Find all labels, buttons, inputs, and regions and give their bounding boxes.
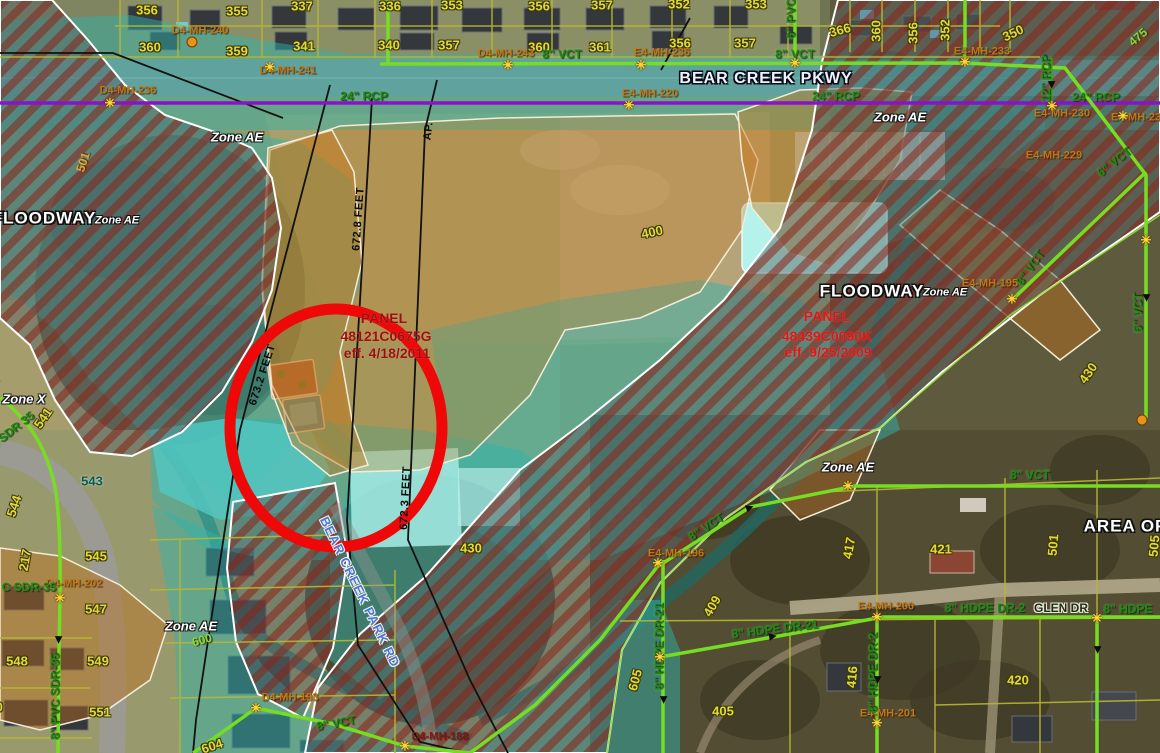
parcel-label: 505	[1147, 535, 1160, 558]
parcel-label: 501	[1046, 534, 1061, 557]
parcel-label: 549	[87, 655, 109, 668]
flow-arrow-icon: ▶	[872, 676, 882, 684]
contour-label: 600	[191, 632, 213, 649]
flow-arrow-icon: ▶	[1046, 81, 1056, 89]
flow-arrow-icon: ▶	[1092, 646, 1102, 654]
panel-effective-date: eff. 4/18/2011	[344, 346, 430, 360]
parcel-label: 356	[907, 22, 920, 44]
parcel-label: 357	[438, 39, 460, 52]
parcel-label: 340	[378, 39, 400, 52]
parcel-label: 352	[939, 19, 952, 41]
manhole-icon: ✳	[960, 56, 971, 69]
parcel-label: 353	[441, 0, 463, 12]
parcel-label: 416	[845, 666, 860, 689]
street-label: BEAR CREEK PARK RD	[318, 515, 402, 670]
pipe-label: 8" VCT	[1010, 469, 1050, 481]
manhole-icon: ✳	[1141, 234, 1152, 247]
parcel-label: 547	[85, 603, 107, 616]
pipe-label: 24" RCP	[340, 90, 388, 102]
manhole-icon: ✳	[790, 57, 801, 70]
panel-title: PANEL	[804, 309, 850, 323]
floodway-label: FLOODWAY	[0, 210, 96, 227]
pipe-label: 6" PVC	[785, 0, 797, 39]
parcel-label: 417	[841, 536, 858, 560]
pipe-label: 8" VCT	[315, 714, 356, 733]
panel-effective-date: eff. 9/25/2009	[784, 345, 871, 359]
parcel-label: 400	[640, 223, 664, 240]
area-of-label: AREA OF	[1084, 518, 1160, 535]
manhole-label: E4-MH-229	[1026, 151, 1082, 162]
manhole-label: D4-MH-188	[412, 732, 469, 743]
pipe-label: 8" VCT	[1014, 248, 1047, 287]
panel-number: 48121C0675G	[340, 329, 431, 343]
parcel-label: 352	[668, 0, 690, 11]
pipe-label: 24" RCP	[812, 90, 860, 102]
parcel-label: 605	[626, 668, 644, 692]
flow-arrow-icon: ▶	[658, 696, 668, 704]
pipe-label: 12" RCP	[1040, 55, 1052, 103]
parcel-label: 421	[930, 543, 952, 556]
parcel-label: 336	[379, 0, 401, 13]
manhole-label: D4-MH-193	[262, 693, 319, 704]
panel-title: PANEL	[361, 311, 407, 325]
flow-arrow-icon: ▶	[768, 632, 777, 643]
parcel-label: 543	[81, 475, 103, 488]
manhole-icon: ✳	[872, 611, 883, 624]
parcel-label: 357	[734, 37, 756, 50]
contour-label: 604	[200, 736, 225, 753]
contour-label: 475	[1126, 26, 1149, 48]
parcel-label: 350	[1000, 23, 1025, 44]
parcel-label: 356	[528, 0, 550, 13]
manhole-icon: ✳	[655, 651, 666, 664]
parcel-label: 217	[17, 548, 34, 572]
parcel-label: 360	[139, 41, 161, 54]
pipe-label: 6" VCT	[1095, 145, 1134, 179]
manhole-icon: ✳	[624, 99, 635, 112]
parcel-label: 430	[460, 542, 482, 555]
manhole-icon: ✳	[636, 59, 647, 72]
manhole-label: D4-MH-240	[172, 26, 229, 37]
contour-label: 501	[74, 151, 92, 174]
manhole-label: E4-MH-195	[962, 279, 1018, 290]
zone-x-label: Zone X	[2, 393, 45, 406]
manhole-icon: ✳	[503, 59, 514, 72]
pipe-label: 8" VCT	[542, 48, 582, 60]
parcel-label: 420	[1007, 674, 1029, 687]
flow-arrow-icon: ▶	[1141, 294, 1151, 302]
manhole-dot-icon	[1137, 415, 1148, 426]
parcel-label: 353	[745, 0, 767, 11]
parcel-label: 409	[701, 593, 723, 618]
pipe-label: 8" VCT	[686, 511, 726, 543]
street-label: GLEN DR	[1034, 602, 1088, 614]
zone-ae-label: Zone AE	[874, 111, 926, 124]
parcel-label: 430	[1076, 360, 1099, 385]
parcel-label: 356	[136, 4, 158, 17]
manhole-dot-icon	[187, 37, 198, 48]
flow-arrow-icon: ▶	[53, 636, 63, 644]
manhole-icon: ✳	[1092, 612, 1103, 625]
pipe-label: C SDR-35	[2, 581, 57, 593]
parcel-label: 405	[712, 705, 734, 718]
manhole-icon: ✳	[265, 61, 276, 74]
manhole-icon: ✳	[1007, 293, 1018, 306]
pipe-label: 8" HDPE DR-21	[653, 603, 665, 690]
flow-arrow-icon: ▶	[745, 502, 756, 514]
parcel-label: 341	[293, 40, 315, 53]
labels-layer: Zone AEZone AEZone AEZone AEZone XFLOODW…	[0, 0, 1160, 753]
panel-number: 48439C0090K	[782, 329, 872, 343]
parcel-label: 366	[828, 21, 852, 39]
pipe-label: 8" HDPE DR-2	[867, 633, 879, 713]
manhole-icon: ✳	[843, 480, 854, 493]
parcel-label: 544	[4, 494, 23, 519]
parcel-label: 548	[6, 655, 28, 668]
section-label: AP.	[422, 121, 435, 141]
parcel-label: 545	[85, 550, 107, 563]
section-label: 672.3 FEET	[399, 466, 413, 530]
parcel-label: 359	[226, 45, 248, 58]
manhole-label: E4-MH-230	[1034, 109, 1090, 120]
floodway-zone-label: Zone AE	[95, 216, 139, 227]
floodway-zone-label: Zone AE	[923, 288, 967, 299]
manhole-icon: ✳	[653, 557, 664, 570]
parcel-label: 355	[226, 5, 248, 18]
manhole-icon: ✳	[55, 592, 66, 605]
parcel-label: 360	[870, 20, 883, 42]
parcel-label: 551	[89, 706, 111, 719]
manhole-icon: ✳	[1118, 110, 1129, 123]
manhole-icon: ✳	[1047, 100, 1058, 113]
section-label: 673.2 FEET	[248, 343, 278, 407]
parcel-label: 357	[591, 0, 613, 12]
manhole-icon: ✳	[400, 740, 411, 753]
parcel-label: 337	[291, 0, 313, 13]
parcel-label: 361	[589, 41, 611, 54]
pipe-label: 8" HDPE	[1103, 603, 1152, 615]
street-label: BEAR CREEK PKWY	[679, 71, 852, 87]
manhole-icon: ✳	[105, 97, 116, 110]
zone-ae-label: Zone AE	[211, 131, 263, 144]
manhole-icon: ✳	[251, 702, 262, 715]
manhole-label: E4-MH-200	[858, 602, 914, 613]
manhole-icon: ✳	[872, 717, 883, 730]
pipe-label: 8" PVC SDR-35	[49, 654, 61, 740]
section-label: 672.8 FEET	[351, 187, 366, 251]
parcel-label: 550	[0, 701, 3, 714]
pipe-label: SDR 35	[0, 409, 36, 444]
map-canvas: Zone AEZone AEZone AEZone AEZone XFLOODW…	[0, 0, 1160, 753]
zone-ae-label: Zone AE	[822, 461, 874, 474]
floodway-label: FLOODWAY	[820, 283, 925, 300]
pipe-label: 24" RCP	[1072, 91, 1120, 103]
pipe-label: 8" HDPE DR-2	[945, 602, 1025, 614]
